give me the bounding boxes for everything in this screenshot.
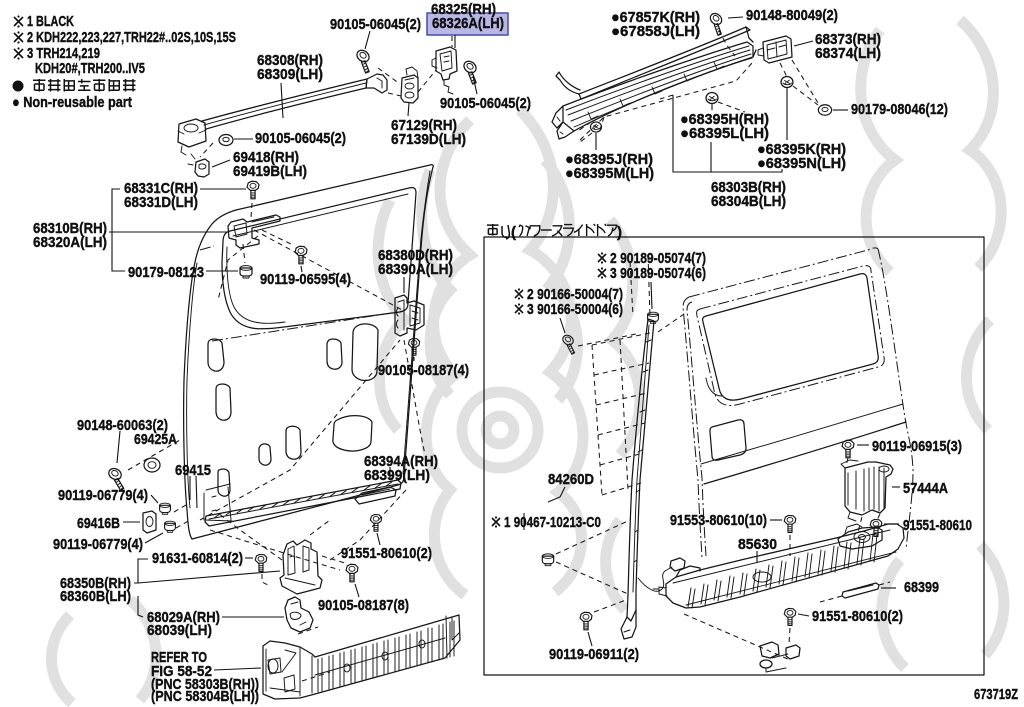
svg-text:KDH20#,TRH200..IV5: KDH20#,TRH200..IV5 — [35, 60, 145, 77]
svg-text:(: ( — [511, 224, 516, 241]
svg-text:91631-60814(2): 91631-60814(2) — [152, 550, 243, 567]
svg-text:91551-80610(2): 91551-80610(2) — [812, 608, 903, 625]
svg-text:90119-06915(3): 90119-06915(3) — [872, 438, 962, 455]
svg-text:1 90467-10213-C0: 1 90467-10213-C0 — [504, 514, 601, 531]
svg-text:57444A: 57444A — [903, 480, 948, 497]
svg-text:90105-06045(2): 90105-06045(2) — [440, 95, 531, 112]
svg-text:68399: 68399 — [904, 579, 939, 596]
svg-text:3 90166-50004(6): 3 90166-50004(6) — [527, 301, 623, 318]
svg-text:69419B(LH): 69419B(LH) — [233, 163, 307, 180]
svg-text:2 KDH222,223,227,TRH22#..02S,1: 2 KDH222,223,227,TRH22#..02S,10S,15S — [27, 29, 236, 46]
svg-text:84260D: 84260D — [548, 471, 594, 488]
svg-text:90119-06595(4): 90119-06595(4) — [260, 271, 351, 288]
svg-text:90105-06045(2): 90105-06045(2) — [255, 130, 346, 147]
svg-text:69425A: 69425A — [134, 431, 177, 448]
svg-text:): ) — [617, 224, 622, 241]
svg-text:85630: 85630 — [738, 536, 777, 553]
svg-text:673719Z: 673719Z — [974, 686, 1018, 703]
svg-text:68320A(LH): 68320A(LH) — [33, 234, 107, 251]
svg-text:68331D(LH): 68331D(LH) — [124, 194, 198, 211]
svg-text:90119-06779(4): 90119-06779(4) — [58, 487, 148, 504]
svg-text:91553-80610(10): 91553-80610(10) — [670, 512, 767, 529]
svg-text:68374(LH): 68374(LH) — [815, 45, 881, 62]
svg-text:90105-08187(4): 90105-08187(4) — [378, 362, 469, 379]
svg-text:68390A(LH): 68390A(LH) — [378, 261, 453, 278]
svg-text:69416B: 69416B — [77, 515, 120, 532]
svg-text:90148-80049(2): 90148-80049(2) — [746, 7, 838, 24]
svg-text:90105-08187(8): 90105-08187(8) — [318, 597, 409, 614]
svg-text:68399(LH): 68399(LH) — [364, 467, 430, 484]
svg-text:68309(LH): 68309(LH) — [257, 66, 323, 83]
svg-text:●68395N(LH): ●68395N(LH) — [757, 155, 846, 172]
svg-text:● Non-reusable part: ● Non-reusable part — [12, 94, 132, 111]
svg-text:●68395L(LH): ●68395L(LH) — [680, 125, 769, 142]
svg-text:68304B(LH): 68304B(LH) — [711, 193, 786, 210]
svg-text:90179-08046(12): 90179-08046(12) — [851, 101, 948, 118]
svg-text:●68395M(LH): ●68395M(LH) — [565, 165, 654, 182]
svg-text:1 BLACK: 1 BLACK — [27, 13, 74, 30]
svg-text:90105-06045(2): 90105-06045(2) — [330, 16, 421, 33]
svg-text:69415: 69415 — [175, 462, 211, 479]
svg-text:90119-06911(2): 90119-06911(2) — [549, 646, 639, 663]
svg-text:3 90189-05074(6): 3 90189-05074(6) — [610, 265, 706, 282]
svg-text:68360B(LH): 68360B(LH) — [60, 588, 131, 605]
svg-text:68326A(LH): 68326A(LH) — [432, 15, 504, 32]
svg-text:●67858J(LH): ●67858J(LH) — [611, 23, 700, 40]
svg-text:90119-06779(4): 90119-06779(4) — [53, 536, 143, 553]
svg-text:91551-80610: 91551-80610 — [903, 517, 972, 534]
svg-text:91551-80610(2): 91551-80610(2) — [341, 545, 432, 562]
svg-text:68039(LH): 68039(LH) — [147, 622, 212, 639]
svg-text:67139D(LH): 67139D(LH) — [391, 131, 466, 148]
svg-text:90179-08123: 90179-08123 — [128, 264, 204, 281]
svg-text:(PNC 58304B(LH)): (PNC 58304B(LH)) — [151, 688, 259, 705]
